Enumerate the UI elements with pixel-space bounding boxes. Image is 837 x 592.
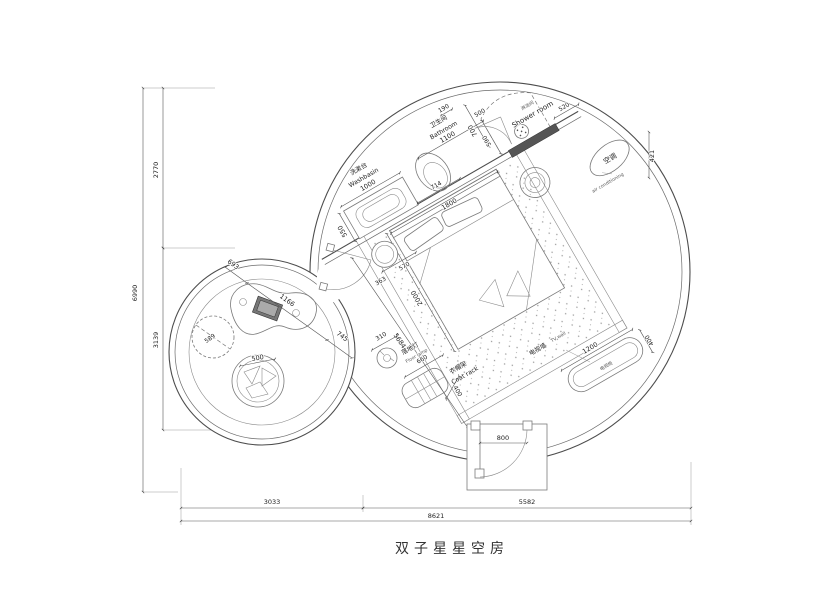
dim-left-bottom: 3139 (152, 332, 160, 349)
dim-left-overall: 6990 (131, 285, 139, 302)
dimension-chain-bottom: 3033 5582 8621 (181, 462, 691, 525)
svg-text:421: 421 (648, 150, 656, 162)
dim-bottom-right: 5582 (519, 498, 536, 506)
dim-entry-door: 800 (497, 434, 509, 442)
dim-bottom-overall: 8621 (428, 512, 445, 520)
floor-plan-canvas: 6990 2770 3139 3033 5582 8621 (0, 0, 837, 592)
door-jamb (523, 421, 532, 430)
dim-bottom-left: 3033 (264, 498, 281, 506)
floor-plan-drawing: 6990 2770 3139 3033 5582 8621 (0, 0, 837, 592)
drawing-title: 双子星星空房 (395, 541, 509, 557)
door-jamb (471, 421, 480, 430)
entrance: 800 (467, 421, 547, 490)
dim-left-top: 2770 (152, 162, 160, 179)
